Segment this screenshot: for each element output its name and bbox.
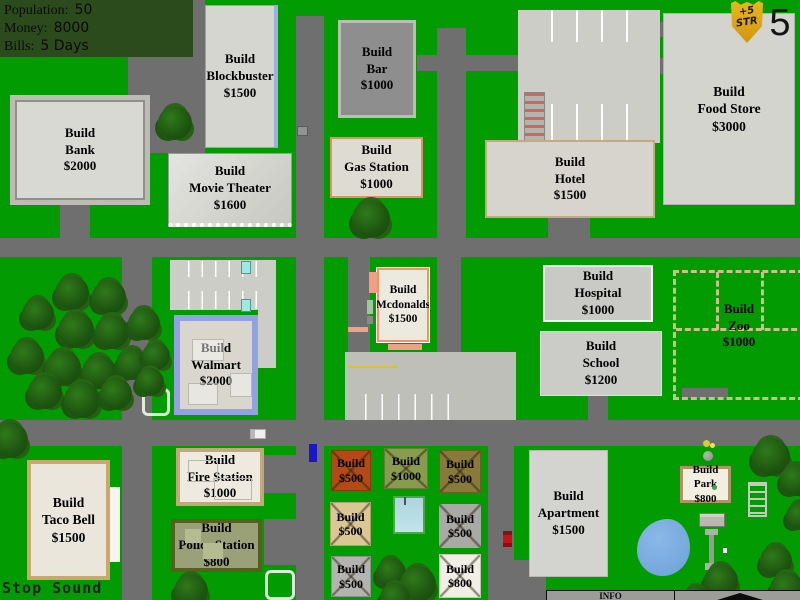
building-taco-bell[interactable]: Build Taco Bell $1500 (27, 460, 110, 580)
label: School (583, 355, 620, 372)
building-fire-station[interactable]: Build Fire Station $1000 (176, 448, 264, 506)
label: $1500 (552, 522, 585, 539)
label: Taco Bell (42, 511, 95, 529)
label: $1200 (585, 372, 618, 389)
tree (158, 106, 192, 140)
road-horizontal-north (0, 238, 800, 257)
label: $2000 (64, 158, 97, 175)
stat-value: 50 (75, 2, 93, 18)
shop-plot-7[interactable]: Build $800 (439, 554, 481, 598)
police-station-driveway (264, 519, 298, 565)
shop-plot-3[interactable]: Build $500 (439, 450, 481, 493)
label: Zoo (728, 318, 750, 335)
mcdonalds-drivethru-window (369, 272, 377, 293)
label: Build (361, 142, 391, 159)
pond (637, 519, 690, 576)
building-bar[interactable]: Build Bar $1000 (338, 20, 416, 118)
empty-plot-outline (265, 570, 295, 600)
building-school[interactable]: Build School $1200 (540, 331, 662, 396)
label: $500 (339, 524, 363, 538)
building-movie-theater[interactable]: Build Movie Theater $1600 (168, 153, 292, 227)
tree (92, 280, 126, 314)
ball (703, 451, 713, 461)
label: Build (337, 562, 365, 576)
tree (786, 502, 800, 530)
label: Build (553, 488, 583, 505)
tree (142, 342, 170, 370)
bench (699, 513, 725, 527)
road-horizontal-south (0, 420, 800, 446)
mcdonalds-prop (367, 316, 373, 324)
parking-stalls (528, 104, 648, 140)
label: $500 (448, 526, 472, 540)
label: Build (201, 520, 231, 537)
label: Hospital (575, 285, 622, 302)
label: Bank (65, 142, 95, 159)
stat-money: Money: 8000 (4, 20, 193, 38)
building-hospital[interactable]: Build Hospital $1000 (543, 265, 653, 322)
mcdonalds-drivethru-bar (348, 327, 368, 332)
label: $1500 (224, 85, 257, 102)
building-blockbuster[interactable]: Build Blockbuster $1500 (205, 5, 278, 148)
label: Mcdonalds (376, 298, 430, 313)
parking-stalls (350, 394, 460, 420)
building-apartment[interactable]: Build Apartment $1500 (529, 450, 608, 577)
label: Movie Theater (189, 180, 271, 197)
roof-detail (203, 543, 223, 559)
chevron-up-icon (704, 593, 776, 600)
tree (95, 315, 129, 349)
stop-sound-button[interactable]: Stop Sound (2, 579, 102, 597)
stats-panel: Population: 50 Money: 8000 Bills: 5 Days (0, 0, 193, 57)
stat-label: Money: (4, 21, 48, 37)
tree (352, 200, 390, 238)
label: $500 (448, 472, 472, 486)
diving-board (404, 497, 406, 505)
shop-plot-4[interactable]: Build $500 (330, 502, 371, 546)
label: Apartment (538, 505, 599, 522)
parking-stalls (528, 10, 648, 42)
pool (393, 496, 425, 534)
roof-detail (185, 529, 201, 543)
tree (64, 382, 100, 418)
roof-detail (192, 339, 224, 361)
label: $1000 (361, 77, 394, 94)
school-driveway (588, 396, 608, 420)
label: $500 (339, 471, 363, 485)
tree (174, 574, 208, 600)
info-bar-expand[interactable] (675, 591, 800, 600)
shop-plot-1[interactable]: Build $500 (331, 450, 371, 491)
info-bar[interactable]: INFO (546, 590, 800, 600)
tree (22, 298, 54, 330)
road-mcdonalds-east (437, 238, 461, 356)
stat-bills: Bills: 5 Days (4, 38, 193, 56)
label: $500 (339, 577, 363, 591)
stat-label: Bills: (4, 39, 34, 55)
tree (58, 312, 94, 348)
building-gas-station[interactable]: Build Gas Station $1000 (330, 137, 423, 198)
taco-bell-annex (110, 487, 120, 562)
label: Build (446, 562, 474, 576)
mcdonalds-entrance-bar (388, 344, 422, 350)
label: Build (693, 463, 719, 477)
building-park[interactable]: Build Park $800 (680, 466, 731, 503)
car-red (503, 531, 512, 547)
label: $800 (448, 576, 472, 590)
label: Gas Station (344, 159, 409, 176)
cart-return-marker (241, 299, 251, 312)
monkey-bars (748, 482, 767, 517)
label: $1000 (391, 469, 421, 483)
label: $800 (695, 492, 717, 506)
building-zoo[interactable]: Build Zoo $1000 (673, 300, 800, 352)
car-gray (297, 126, 308, 136)
label: Build (392, 454, 420, 468)
roof-detail (214, 478, 252, 500)
label: Build (555, 154, 585, 171)
roof-detail (230, 373, 252, 397)
stat-population: Population: 50 (4, 2, 193, 20)
tree (28, 375, 62, 409)
tree (136, 368, 164, 396)
info-bar-title[interactable]: INFO (547, 591, 675, 600)
label: Food Store (697, 100, 760, 118)
tree (55, 276, 89, 310)
label: Hotel (555, 171, 585, 188)
mcdonalds-sign (367, 300, 373, 314)
tree (10, 340, 44, 374)
bank-driveway (60, 203, 90, 238)
building-police-station[interactable]: Build Police Station $800 (171, 519, 262, 572)
shop-plot-6[interactable]: Build $500 (331, 556, 371, 597)
tree (780, 464, 800, 496)
tree (100, 378, 132, 410)
stat-value: 8000 (54, 20, 90, 36)
label: Build (336, 510, 364, 524)
road-stub-bar (417, 55, 518, 71)
label: Build (390, 283, 417, 298)
label: $3000 (712, 118, 746, 136)
label: Build (586, 338, 616, 355)
tree (128, 308, 160, 340)
label: $1000 (723, 334, 756, 351)
label: $1000 (360, 176, 393, 193)
building-bank[interactable]: Build Bank $2000 (10, 95, 150, 205)
park-marker (712, 485, 717, 490)
building-hotel[interactable]: Build Hotel $1500 (485, 140, 655, 218)
building-mcdonalds[interactable]: Build Mcdonalds $1500 (377, 268, 429, 342)
label: Build (65, 125, 95, 142)
cart-return-marker (241, 261, 251, 274)
roof-detail (188, 383, 218, 405)
building-walmart[interactable]: Build Walmart $2000 (174, 315, 258, 415)
fire-station-driveway (264, 455, 298, 493)
label: Build (225, 51, 255, 68)
shop-plot-2[interactable]: Build $1000 (384, 448, 428, 489)
stat-value: 5 Days (40, 38, 88, 54)
yellow-road-line (348, 366, 398, 368)
label: $1600 (214, 197, 247, 214)
label: $1500 (389, 312, 418, 327)
label: Build (362, 44, 392, 61)
label: Build (724, 301, 754, 318)
flower (710, 443, 715, 448)
flower (703, 440, 710, 447)
road-vertical-center (296, 16, 324, 600)
label: Build (337, 456, 365, 470)
label: Build (713, 83, 745, 101)
label: $1500 (52, 529, 86, 547)
label: Build (215, 163, 245, 180)
day-counter: 5 (757, 0, 800, 50)
car-blue (309, 444, 317, 462)
label: Build (53, 494, 85, 512)
label: Build (583, 268, 613, 285)
ladder-structure (524, 92, 545, 145)
badge-text: STR (735, 15, 758, 29)
label: Blockbuster (206, 68, 273, 85)
park-prop (723, 548, 727, 553)
stat-label: Population: (4, 3, 69, 19)
seesaw-pole (709, 535, 714, 565)
label: Build (446, 512, 474, 526)
label: Bar (367, 61, 388, 78)
label: $1500 (554, 187, 587, 204)
car-white (250, 429, 266, 439)
label: Build (446, 457, 474, 471)
hotel-driveway (548, 218, 590, 238)
label: $1000 (582, 302, 615, 319)
walmart-parking-arm (258, 310, 276, 368)
shop-plot-5[interactable]: Build $500 (439, 504, 481, 548)
game-map: Build Bank $2000 Build Blockbuster $1500… (0, 0, 800, 600)
